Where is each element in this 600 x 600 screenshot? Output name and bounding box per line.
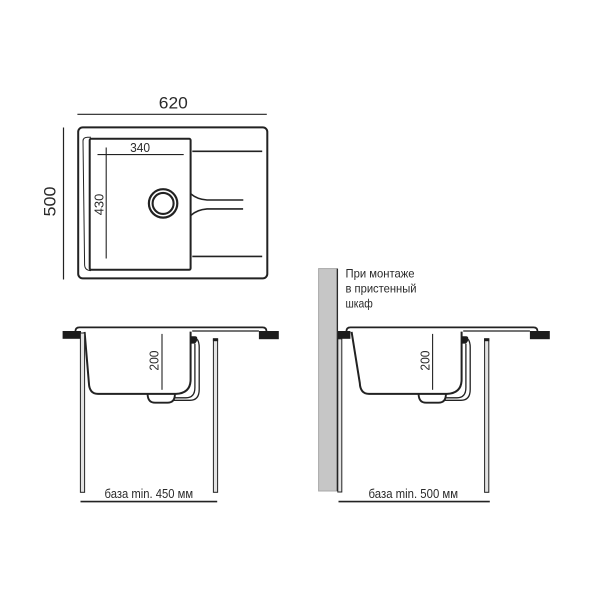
svg-text:500: 500 — [41, 187, 59, 217]
svg-text:200: 200 — [417, 351, 432, 371]
svg-text:в пристенный: в пристенный — [346, 282, 417, 296]
svg-text:база min. 500 мм: база min. 500 мм — [369, 486, 459, 501]
svg-text:620: 620 — [159, 95, 188, 113]
svg-text:200: 200 — [146, 351, 161, 371]
svg-text:340: 340 — [130, 140, 150, 155]
svg-text:база min. 450 мм: база min. 450 мм — [105, 486, 194, 501]
svg-text:430: 430 — [92, 194, 107, 216]
svg-text:шкаф: шкаф — [346, 297, 373, 311]
svg-text:При монтаже: При монтаже — [346, 267, 415, 281]
